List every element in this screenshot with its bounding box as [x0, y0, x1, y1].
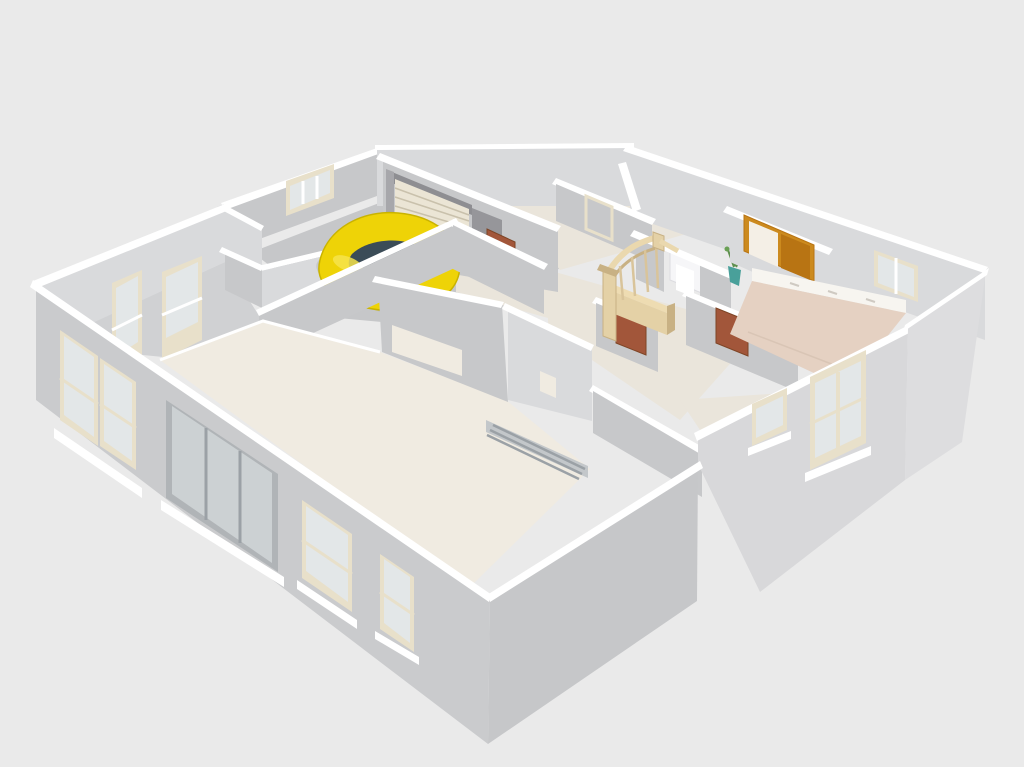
- home-3d-render: [0, 0, 1024, 767]
- 3d-view-canvas[interactable]: [0, 0, 1024, 767]
- stair-newel: [603, 268, 616, 341]
- stair-base-side: [667, 303, 675, 335]
